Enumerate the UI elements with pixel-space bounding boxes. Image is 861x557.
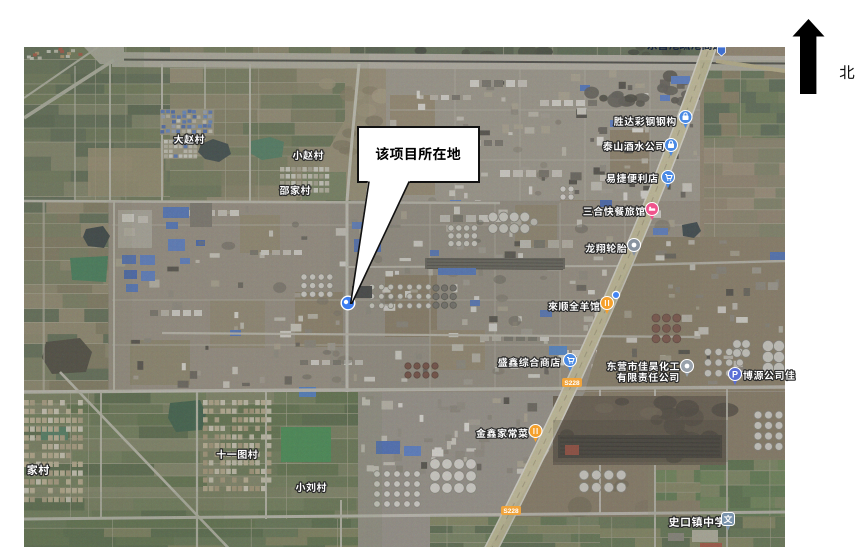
svg-text:S228: S228 — [503, 508, 519, 515]
svg-text:P: P — [732, 370, 738, 380]
svg-text:S228: S228 — [564, 380, 580, 387]
